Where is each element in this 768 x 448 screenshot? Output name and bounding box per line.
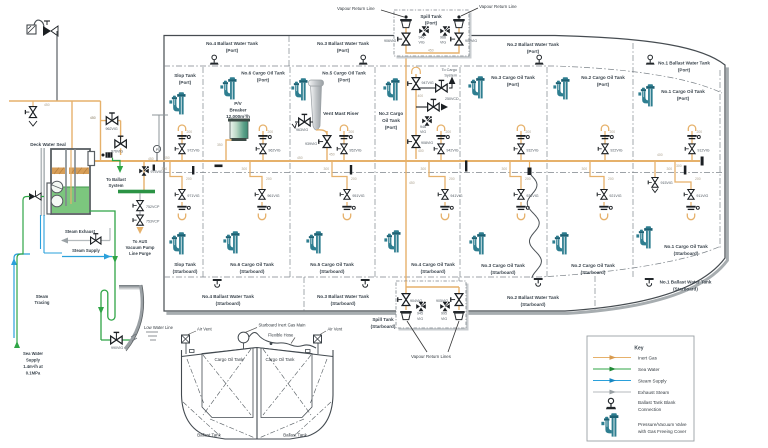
svg-text:Cargo Oil Tank: Cargo Oil Tank [266,357,296,362]
svg-text:450: 450 [428,49,434,53]
svg-text:No.4 Cargo Oil Tank: No.4 Cargo Oil Tank [411,262,455,267]
svg-text:No.6 Cargo Oil Tank: No.6 Cargo Oil Tank [241,71,285,76]
svg-text:(Starboard): (Starboard) [581,270,606,275]
svg-text:947VIG: 947VIG [422,81,434,85]
svg-text:922VIG: 922VIG [610,149,622,153]
svg-text:To AUS: To AUS [133,239,148,244]
svg-text:200: 200 [525,177,531,181]
svg-text:VIG: VIG [419,41,425,45]
svg-text:VIG: VIG [420,130,426,134]
svg-text:200: 200 [697,130,703,134]
svg-text:Spill Tank: Spill Tank [372,317,394,322]
svg-text:Starboard Inert Gas Main: Starboard Inert Gas Main [259,323,307,328]
svg-text:753VCP: 753VCP [146,220,160,224]
svg-text:No.2 Cargo Oil Tank: No.2 Cargo Oil Tank [571,263,615,268]
svg-text:Vapour Return Line: Vapour Return Line [337,6,375,11]
svg-text:931VIG: 931VIG [526,194,538,198]
svg-text:No.2 Cargo: No.2 Cargo [379,111,404,116]
svg-text:No.1 Cargo Oil Tank: No.1 Cargo Oil Tank [661,89,705,94]
svg-text:(Port): (Port) [597,82,610,87]
svg-text:(Port): (Port) [507,82,520,87]
svg-text:Line Purge: Line Purge [129,251,151,256]
svg-text:Steam Supply: Steam Supply [72,248,100,253]
svg-text:942VIG: 942VIG [446,149,458,153]
svg-text:Vapour Return Line: Vapour Return Line [479,4,517,9]
svg-text:752VCP: 752VCP [146,205,160,209]
svg-text:962VIG: 962VIG [268,149,280,153]
svg-text:Key: Key [634,346,643,352]
svg-text:952VIG: 952VIG [349,149,361,153]
svg-text:Ballast Tank Blank: Ballast Tank Blank [638,400,676,405]
svg-text:966: 966 [440,36,446,40]
svg-text:945: 945 [417,312,423,316]
svg-text:450: 450 [297,156,303,160]
svg-text:200: 200 [446,130,452,134]
svg-text:200: 200 [349,130,355,134]
svg-text:Vacuum Pump: Vacuum Pump [126,245,155,250]
svg-text:Deck Water Seal: Deck Water Seal [30,142,66,147]
svg-text:961VIG: 961VIG [267,194,279,198]
svg-text:915VIG: 915VIG [661,181,673,185]
svg-text:450: 450 [164,156,170,160]
svg-text:250VCD: 250VCD [445,97,459,101]
svg-text:962VIG: 962VIG [106,127,118,131]
svg-text:with Gas Freeing Cover: with Gas Freeing Cover [638,429,687,434]
svg-text:200: 200 [187,130,193,134]
svg-text:912VIG: 912VIG [697,149,709,153]
svg-text:Exhaust Steam: Exhaust Steam [638,390,669,395]
svg-text:(Starboard): (Starboard) [521,302,546,307]
svg-text:VIG: VIG [417,317,423,321]
svg-text:946: 946 [420,125,426,129]
svg-text:No.1 Ballast Water Tank: No.1 Ballast Water Tank [660,280,712,285]
svg-text:300: 300 [421,167,427,171]
svg-text:(Port): (Port) [179,80,192,85]
svg-text:976VIG: 976VIG [111,150,123,154]
svg-text:972VIG: 972VIG [187,149,199,153]
svg-text:Vapour Return Lines: Vapour Return Lines [411,354,452,359]
svg-text:No.3 Ballast Water Tank: No.3 Ballast Water Tank [317,294,369,299]
svg-text:Slop Tank: Slop Tank [174,73,196,78]
svg-text:300: 300 [502,167,508,171]
svg-text:450: 450 [148,157,154,161]
svg-text:(Starboard): (Starboard) [491,270,516,275]
svg-text:Tracing: Tracing [35,300,50,305]
svg-text:200: 200 [186,177,192,181]
svg-text:300: 300 [582,167,588,171]
svg-text:No.4 Ballast Water Tank: No.4 Ballast Water Tank [206,41,258,46]
svg-text:System: System [444,74,457,78]
svg-text:Connection: Connection [638,407,662,412]
svg-text:906VIG: 906VIG [384,39,396,43]
svg-text:Flexible Hose: Flexible Hose [268,333,294,338]
svg-text:Slop Tank: Slop Tank [174,262,196,267]
svg-text:P: P [156,148,159,152]
svg-text:VIG: VIG [440,41,446,45]
svg-text:No.2 Ballast Water Tank: No.2 Ballast Water Tank [507,42,559,47]
svg-text:No.5 Cargo Oil Tank: No.5 Cargo Oil Tank [322,71,366,76]
svg-text:Air Vent: Air Vent [197,327,213,332]
svg-text:921VIG: 921VIG [609,194,621,198]
svg-text:400: 400 [657,153,663,157]
svg-text:Cargo Oil Tank: Cargo Oil Tank [215,357,245,362]
svg-text:300: 300 [242,167,248,171]
svg-text:200: 200 [449,177,455,181]
svg-text:(Port): (Port) [385,125,398,130]
svg-text:990VIG: 990VIG [111,346,123,350]
svg-text:1.4m³/h at: 1.4m³/h at [23,364,43,369]
svg-text:Air Vent: Air Vent [328,327,344,332]
svg-text:300: 300 [676,164,682,168]
svg-text:450: 450 [90,116,96,120]
svg-text:939VIG: 939VIG [305,142,317,146]
svg-text:400: 400 [418,94,424,98]
svg-text:P/V: P/V [234,101,242,106]
svg-text:911VIG: 911VIG [696,194,708,198]
svg-text:Spill Tank: Spill Tank [420,14,442,19]
svg-text:(Starboard): (Starboard) [320,269,345,274]
svg-text:No.4 Ballast Water Tank: No.4 Ballast Water Tank [202,294,254,299]
svg-text:995: 995 [441,312,447,316]
svg-text:No.2 Ballast Water Tank: No.2 Ballast Water Tank [507,295,559,300]
svg-text:Sea Water: Sea Water [638,367,660,372]
svg-text:951VIG: 951VIG [352,194,364,198]
svg-text:200: 200 [351,177,357,181]
svg-text:No.3 Cargo Oil Tank: No.3 Cargo Oil Tank [481,263,525,268]
svg-text:963VIG: 963VIG [296,128,308,132]
svg-text:(Port): (Port) [678,68,691,73]
svg-text:450: 450 [329,153,335,157]
svg-text:No.1 Ballast Water Tank: No.1 Ballast Water Tank [658,61,710,66]
svg-text:200: 200 [268,130,274,134]
svg-text:To Cargo: To Cargo [442,68,457,72]
svg-text:(Starboard): (Starboard) [371,324,396,329]
svg-text:941VIG: 941VIG [450,194,462,198]
svg-text:(Port): (Port) [677,96,690,101]
svg-text:200: 200 [608,177,614,181]
svg-text:No.5 Cargo Oil Tank: No.5 Cargo Oil Tank [310,262,354,267]
svg-text:971VIG: 971VIG [187,194,199,198]
svg-text:System: System [109,183,124,188]
svg-text:(Starboard): (Starboard) [421,269,446,274]
svg-text:(Port): (Port) [226,48,239,53]
svg-text:Steam Supply: Steam Supply [638,378,667,383]
svg-text:908VIG: 908VIG [421,141,433,145]
svg-text:(Starboard): (Starboard) [674,251,699,256]
svg-text:300: 300 [324,167,330,171]
svg-text:Ballast Tank: Ballast Tank [283,433,307,438]
svg-text:Low Water Line: Low Water Line [144,325,174,330]
svg-text:12,000m³/h: 12,000m³/h [226,114,250,119]
svg-text:No.6 Cargo Oil Tank: No.6 Cargo Oil Tank [230,262,274,267]
svg-text:Ballast Tank: Ballast Tank [197,433,221,438]
svg-text:To Ballast: To Ballast [106,177,126,182]
svg-text:Inert Gas: Inert Gas [638,355,658,360]
svg-text:(Starboard): (Starboard) [216,301,241,306]
svg-text:Steam: Steam [36,294,49,299]
svg-text:(Port): (Port) [337,48,350,53]
svg-text:Oil Tank: Oil Tank [382,118,400,123]
svg-text:975VIG: 975VIG [151,170,163,174]
svg-text:Breaker: Breaker [229,108,246,113]
svg-text:200: 200 [610,130,616,134]
svg-text:(Starboard): (Starboard) [173,269,198,274]
svg-text:450: 450 [409,181,415,185]
svg-text:Pressure/Vacuum Valve: Pressure/Vacuum Valve [638,422,687,427]
svg-text:Sea Water: Sea Water [23,351,43,356]
svg-text:932VIG: 932VIG [526,149,538,153]
svg-text:200: 200 [695,177,701,181]
svg-text:No.2 Cargo Oil Tank: No.2 Cargo Oil Tank [581,75,625,80]
svg-text:Vent Mast Riser: Vent Mast Riser [323,111,359,117]
svg-text:0.1MPa: 0.1MPa [26,371,41,376]
svg-text:200: 200 [526,130,532,134]
svg-text:300: 300 [667,167,673,171]
svg-text:(Port): (Port) [527,49,540,54]
svg-text:No.1 Cargo Oil Tank: No.1 Cargo Oil Tank [664,244,708,249]
svg-text:(Port): (Port) [425,21,438,26]
svg-text:400: 400 [418,149,424,153]
svg-text:(Port): (Port) [257,78,270,83]
svg-text:(Starboard): (Starboard) [673,287,698,292]
svg-text:200: 200 [266,177,272,181]
svg-text:No.3 Cargo Oil Tank: No.3 Cargo Oil Tank [491,75,535,80]
svg-text:(Starboard): (Starboard) [331,301,356,306]
svg-text:(Port): (Port) [338,78,351,83]
svg-text:350: 350 [217,143,223,147]
svg-text:Supply: Supply [26,358,41,363]
svg-text:450: 450 [44,103,50,107]
svg-text:Steam Exhaust: Steam Exhaust [65,229,96,234]
svg-text:907VIG: 907VIG [465,39,477,43]
svg-text:946: 946 [419,36,425,40]
svg-text:No.3 Ballast Water Tank: No.3 Ballast Water Tank [317,41,369,46]
svg-text:VIG: VIG [441,317,447,321]
svg-text:(Starboard): (Starboard) [240,269,265,274]
